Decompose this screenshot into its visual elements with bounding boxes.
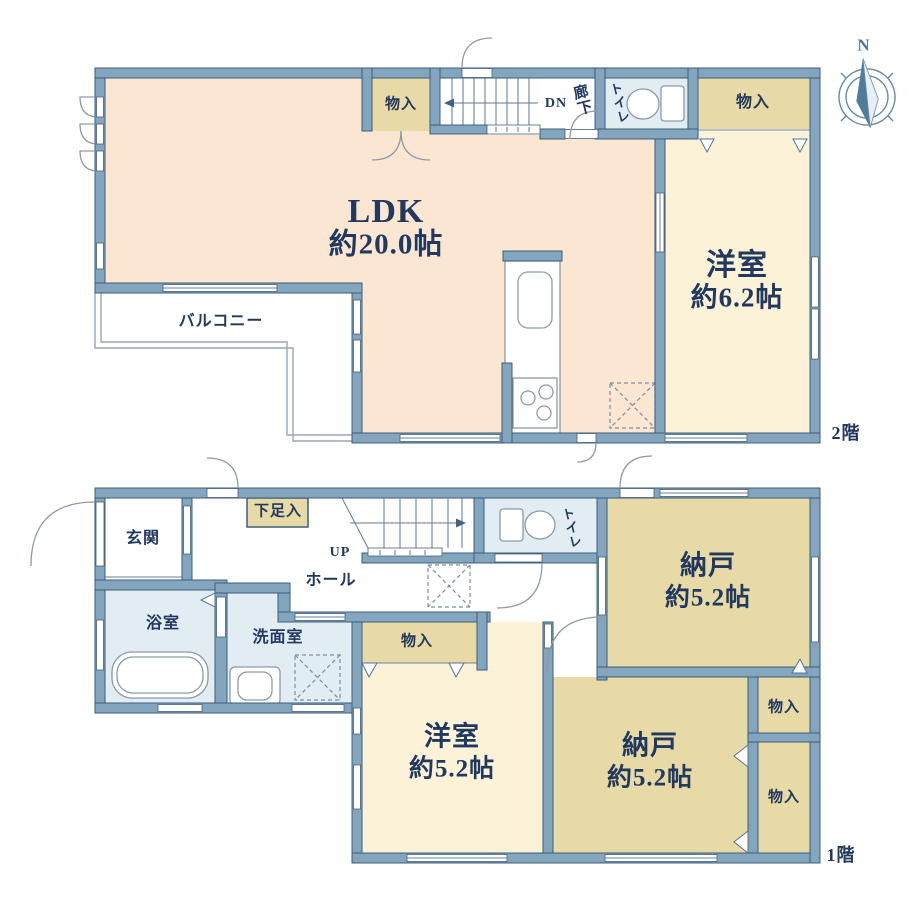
floor-plan: LDK 約20.0帖 洋室 約6.2帖 バルコニー 物入 DN 廊下 トイレ 物… (0, 0, 920, 920)
closet-west-label: 物入 (401, 635, 433, 650)
stairs1f-up-label: UP (330, 546, 351, 560)
western2f-label: 洋室 (706, 251, 768, 281)
compass-north-label: N (857, 37, 870, 54)
hall-notch (290, 593, 352, 612)
balcony-label: バルコニー (179, 314, 264, 330)
storage2-size-label: 約5.2帖 (607, 766, 693, 791)
hall-label: ホール (305, 573, 356, 589)
floor2-label: 2階 (832, 424, 861, 442)
kitchen-counter (505, 261, 560, 438)
floor1-label: 1階 (827, 846, 856, 864)
storage1-label: 納戸 (680, 553, 736, 580)
washing-machine-icon (230, 667, 280, 705)
stairs1f (342, 498, 466, 548)
shoe-closet-label: 下足入 (254, 505, 302, 520)
storage2-label: 納戸 (622, 733, 678, 760)
closet2f-left-label: 物入 (385, 98, 417, 113)
stairs1f-arrow-head (456, 519, 466, 528)
compass-icon (835, 55, 898, 130)
room-storage1-floor (607, 498, 810, 667)
dashed-hatch-1f-hall (428, 565, 470, 607)
closet-east-top-label: 物入 (768, 701, 800, 716)
western1f-label: 洋室 (424, 724, 480, 751)
entrance-label: 玄関 (126, 531, 160, 547)
ldk-label: LDK (348, 195, 425, 229)
stairs2f-dn-label: DN (545, 97, 567, 111)
western2f-size-label: 約6.2帖 (691, 285, 784, 312)
washroom-label: 洗面室 (252, 630, 303, 646)
bathtub-icon (112, 652, 208, 698)
storage1-size-label: 約5.2帖 (665, 586, 751, 611)
western1f-size-label: 約5.2帖 (409, 757, 495, 782)
ldk-size-label: 約20.0帖 (329, 231, 444, 260)
closet-east-bottom-label: 物入 (768, 791, 800, 806)
closet2f-right-label: 物入 (736, 95, 770, 111)
bathroom-label: 浴室 (146, 616, 180, 632)
